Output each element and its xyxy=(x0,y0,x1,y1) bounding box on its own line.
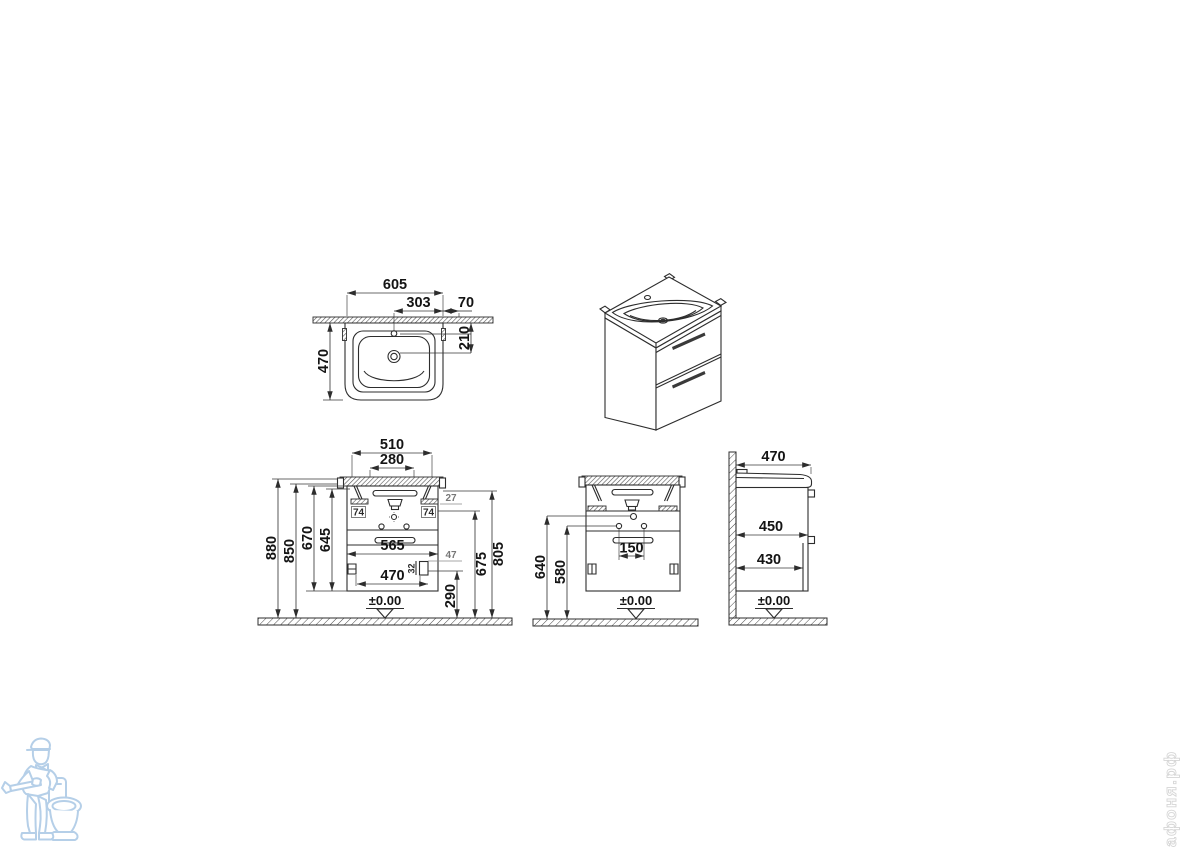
dim-side-470: 470 xyxy=(761,449,785,465)
dim-rear-640: 640 xyxy=(533,555,549,579)
front-top-dimensions: 510 280 xyxy=(352,437,432,477)
mount-bracket-left xyxy=(351,499,368,504)
datum-label-rear: ±0.00 xyxy=(620,593,652,608)
floor-hatch-front xyxy=(258,618,512,625)
basin-side-profile xyxy=(736,473,812,488)
dim-side-450: 450 xyxy=(759,519,783,535)
technical-drawing-svg: 605 303 70 470 210 xyxy=(0,0,1200,849)
front-right-dimensions: 27 47 290 675 805 xyxy=(428,491,507,618)
datum-triangle-rear xyxy=(628,609,644,619)
dim-rear-150: 150 xyxy=(619,541,643,557)
watermark-site-text: афоня.рф xyxy=(1161,750,1180,847)
dim-front-670: 670 xyxy=(300,526,316,550)
dim-front-880: 880 xyxy=(264,536,280,560)
dim-front-27: 27 xyxy=(445,493,457,504)
datum-rear: ±0.00 xyxy=(617,593,655,619)
datum-side: ±0.00 xyxy=(755,593,793,618)
datum-label-side: ±0.00 xyxy=(758,593,790,608)
cabinet-side xyxy=(736,488,808,592)
dim-front-47: 47 xyxy=(445,550,457,561)
drawer-handle-side-bottom xyxy=(808,537,815,544)
dim-top-303: 303 xyxy=(406,295,430,311)
dim-front-470: 470 xyxy=(380,568,404,584)
dim-front-290: 290 xyxy=(443,584,459,608)
dim-bracket-74-right: 74 xyxy=(423,508,435,519)
datum-front: ±0.00 xyxy=(366,593,404,618)
wall-hatch xyxy=(313,317,493,323)
side-bracket-right xyxy=(442,329,446,341)
basin-rim-rear xyxy=(582,476,682,485)
plumber-cap xyxy=(31,739,50,750)
side-bracket-left xyxy=(343,329,347,341)
plumber-leg-left xyxy=(27,794,36,833)
dim-top-210: 210 xyxy=(457,326,473,350)
front-view: 74 74 565 32 470 510 280 880 850 xyxy=(258,437,512,625)
dim-top-depth: 470 xyxy=(316,349,332,373)
dim-rear-580: 580 xyxy=(553,560,569,584)
side-view: 470 450 430 ±0.00 xyxy=(729,449,827,625)
front-left-dimensions: 880 850 670 645 xyxy=(264,479,350,618)
dim-front-510: 510 xyxy=(380,437,404,453)
plumber-leg-right xyxy=(38,796,47,833)
rear-view: 150 640 580 ±0.00 xyxy=(533,476,698,626)
isometric-view xyxy=(600,274,726,430)
toilet-pedestal xyxy=(50,810,78,832)
floor-hatch-side xyxy=(729,618,827,625)
dim-bracket-74-left: 74 xyxy=(353,508,365,519)
dim-front-32: 32 xyxy=(407,563,417,573)
watermark-logo xyxy=(2,739,81,841)
basin-outline xyxy=(345,323,443,400)
dim-front-850: 850 xyxy=(282,539,298,563)
dim-front-805: 805 xyxy=(491,542,507,566)
dim-front-280: 280 xyxy=(380,452,404,468)
drawing-canvas: 605 303 70 470 210 xyxy=(0,0,1200,849)
basin-rim-front xyxy=(340,477,443,486)
drawer-handle-side-top xyxy=(808,490,815,497)
toilet-base xyxy=(50,832,77,840)
dim-front-645: 645 xyxy=(318,528,334,552)
wall-hatch-side xyxy=(729,452,736,618)
datum-triangle-front xyxy=(377,609,393,618)
datum-triangle-side xyxy=(766,609,782,618)
dim-side-430: 430 xyxy=(757,552,781,568)
plumber-head xyxy=(33,750,49,764)
dim-front-565: 565 xyxy=(380,538,404,554)
datum-label-front: ±0.00 xyxy=(369,593,401,608)
dim-top-70: 70 xyxy=(458,295,474,311)
floor-hatch-rear xyxy=(533,619,698,626)
dim-front-675: 675 xyxy=(474,552,490,576)
mount-bracket-right xyxy=(421,499,438,504)
dim-top-width: 605 xyxy=(383,277,407,293)
top-view: 605 303 70 470 210 xyxy=(313,277,493,400)
